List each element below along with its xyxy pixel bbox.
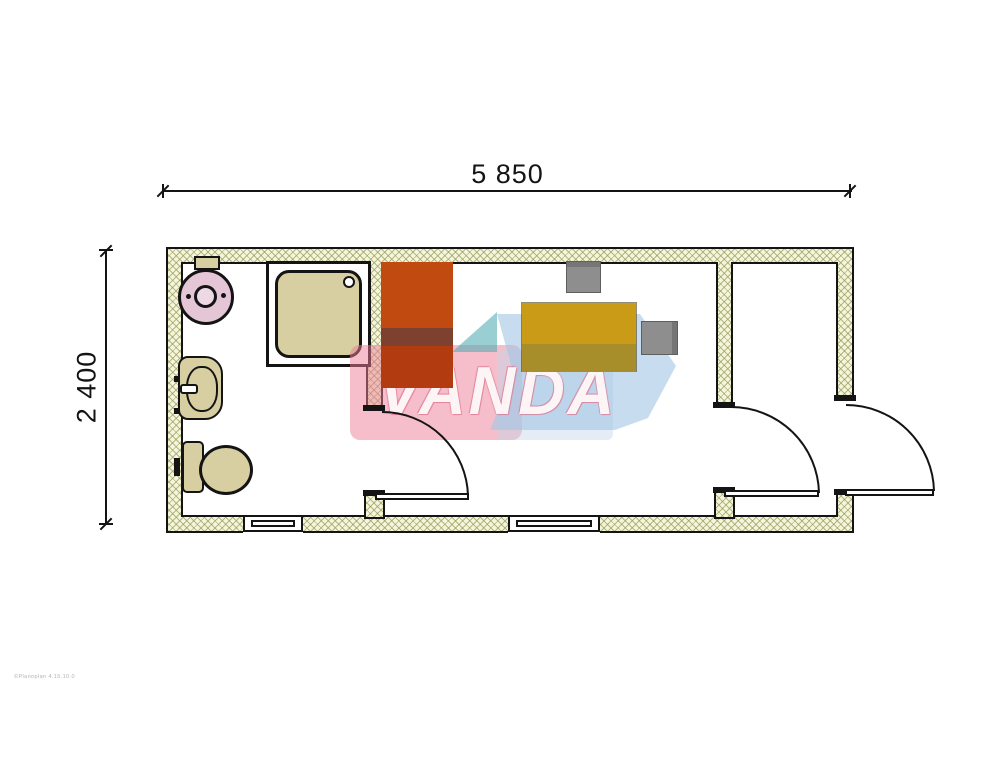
wardrobe-shelf-band: [381, 328, 453, 346]
door-swing-arc: [382, 412, 468, 496]
door-swing-arcs: [0, 0, 1000, 757]
office-chair: [641, 321, 678, 355]
wardrobe: [381, 262, 453, 388]
door-swing-arc: [731, 407, 819, 493]
chair-backrest: [672, 322, 677, 354]
wardrobe-bottom: [381, 346, 453, 388]
desk-front: [522, 344, 636, 372]
fine-print: ©Planoplan 4.15.10.0: [14, 674, 75, 680]
floor-plan-drawing: 5 850 2 400 VANDA: [0, 0, 1000, 757]
wardrobe-top: [381, 262, 453, 328]
chair-backrest: [567, 262, 600, 267]
office-chair: [566, 261, 601, 293]
desk: [521, 302, 637, 372]
desk-top-surface: [522, 303, 636, 344]
door-swing-arc: [846, 405, 934, 491]
